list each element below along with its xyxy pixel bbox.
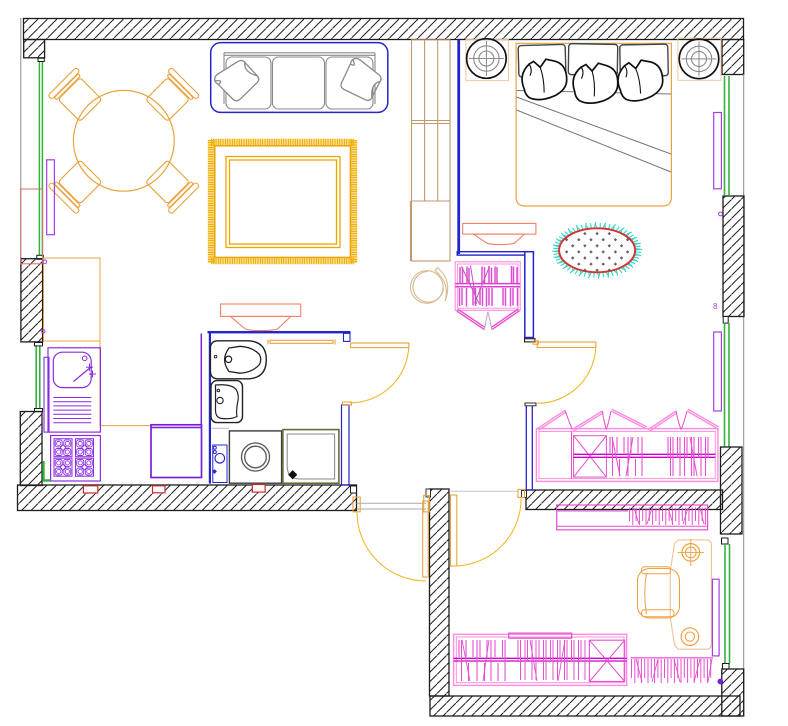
svg-text:8: 8 bbox=[713, 302, 718, 311]
